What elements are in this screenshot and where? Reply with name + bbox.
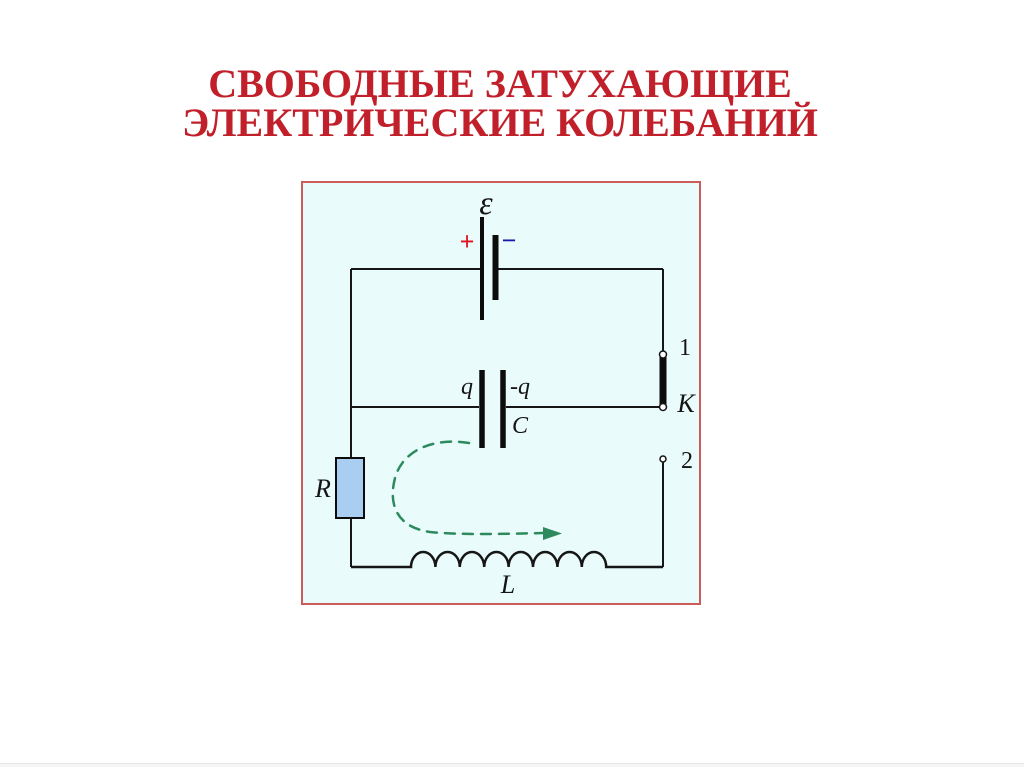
battery-minus-sign: − [502, 226, 517, 255]
switch-contact-1-label: 1 [679, 335, 691, 361]
resistor-label: R [314, 474, 331, 503]
switch-label: K [676, 389, 696, 418]
current-arrowhead [543, 527, 562, 540]
circuit-diagram-box: L ε + − q -q C 1 K 2 R [301, 181, 701, 605]
switch-pivot-dot [660, 404, 667, 411]
switch-contact-2-dot [660, 456, 666, 462]
emf-label: ε [479, 185, 493, 222]
title-line-2: ЭЛЕКТРИЧЕСКИЕ КОЛЕБАНИЙ [182, 100, 818, 145]
inductor-label: L [500, 570, 515, 599]
battery-plus-sign: + [460, 227, 475, 256]
switch-contact-1-dot [660, 351, 667, 358]
current-direction-arrow [393, 442, 543, 534]
charge-positive-label: q [461, 374, 473, 400]
charge-negative-label: -q [510, 374, 530, 400]
capacitor-label: C [512, 413, 529, 439]
slide-bottom-edge [0, 763, 1024, 767]
slide-title: СВОБОДНЫЕ ЗАТУХАЮЩИЕЭЛЕКТРИЧЕСКИЕ КОЛЕБА… [0, 64, 1000, 142]
presentation-slide: СВОБОДНЫЕ ЗАТУХАЮЩИЕЭЛЕКТРИЧЕСКИЕ КОЛЕБА… [0, 0, 1024, 767]
resistor-body [336, 458, 364, 518]
switch-contact-2-label: 2 [681, 448, 693, 474]
inductor-coil [351, 552, 663, 567]
circuit-diagram-svg: L ε + − q -q C 1 K 2 R [303, 183, 699, 603]
